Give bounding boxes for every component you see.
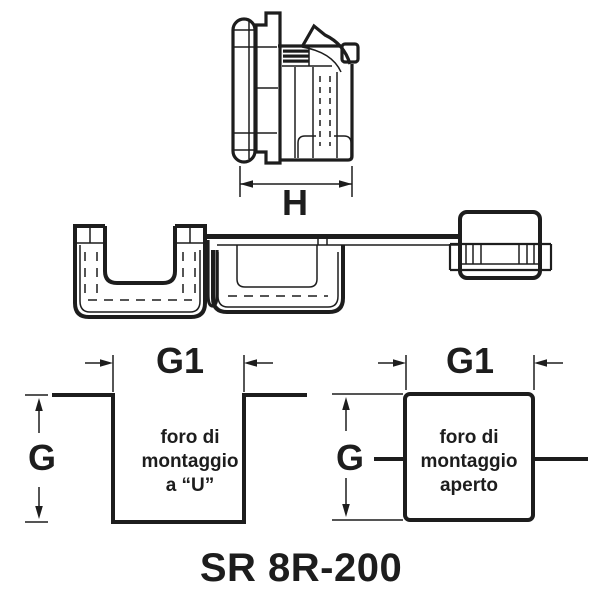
arrowhead-down <box>342 504 350 517</box>
caption-line: foro di <box>160 427 219 448</box>
body-outline <box>280 64 352 160</box>
drawing-svg: H <box>0 0 600 600</box>
rib-stripe <box>283 50 309 53</box>
arrowhead-right <box>339 180 352 188</box>
caption-line: a “U” <box>166 475 215 496</box>
arrowhead-down <box>35 506 43 519</box>
arrowhead-up <box>35 398 43 411</box>
top-side-view-drawing: H <box>233 13 358 223</box>
technical-drawing-sheet: H <box>0 0 600 600</box>
rib-stripe <box>283 60 309 63</box>
caption-line: montaggio <box>141 451 238 472</box>
rib-stripe <box>283 55 309 58</box>
dim-label-G: G <box>336 437 364 478</box>
tray-outline <box>213 245 343 312</box>
caption-line: aperto <box>440 475 498 496</box>
dim-label-G1: G1 <box>156 340 204 381</box>
arrowhead-left <box>240 180 253 188</box>
dim-label-G1: G1 <box>446 340 494 381</box>
flange-capsule <box>233 19 255 162</box>
u-channel-outline <box>75 226 205 317</box>
arrowhead-left <box>534 359 547 367</box>
arrowhead-right <box>393 359 406 367</box>
open-hole-figure: G1 G foro di montaggio aperto <box>332 340 588 520</box>
caption-line: montaggio <box>420 451 517 472</box>
u-hole-figure: G1 G foro di montaggio a “U” <box>25 340 307 522</box>
u-channel-cavity <box>105 226 175 283</box>
arrowhead-up <box>342 397 350 410</box>
part-number-title: SR 8R-200 <box>200 546 402 590</box>
inner-wall-line <box>80 245 200 312</box>
arrowhead-right <box>100 359 113 367</box>
dim-label-G: G <box>28 437 56 478</box>
tray-inner-line <box>218 252 338 307</box>
caption-line: foro di <box>439 427 498 448</box>
arrowhead-left <box>244 359 257 367</box>
tray-pocket <box>237 245 317 287</box>
dim-label-H: H <box>282 182 308 223</box>
flat-view-drawing <box>75 212 551 317</box>
